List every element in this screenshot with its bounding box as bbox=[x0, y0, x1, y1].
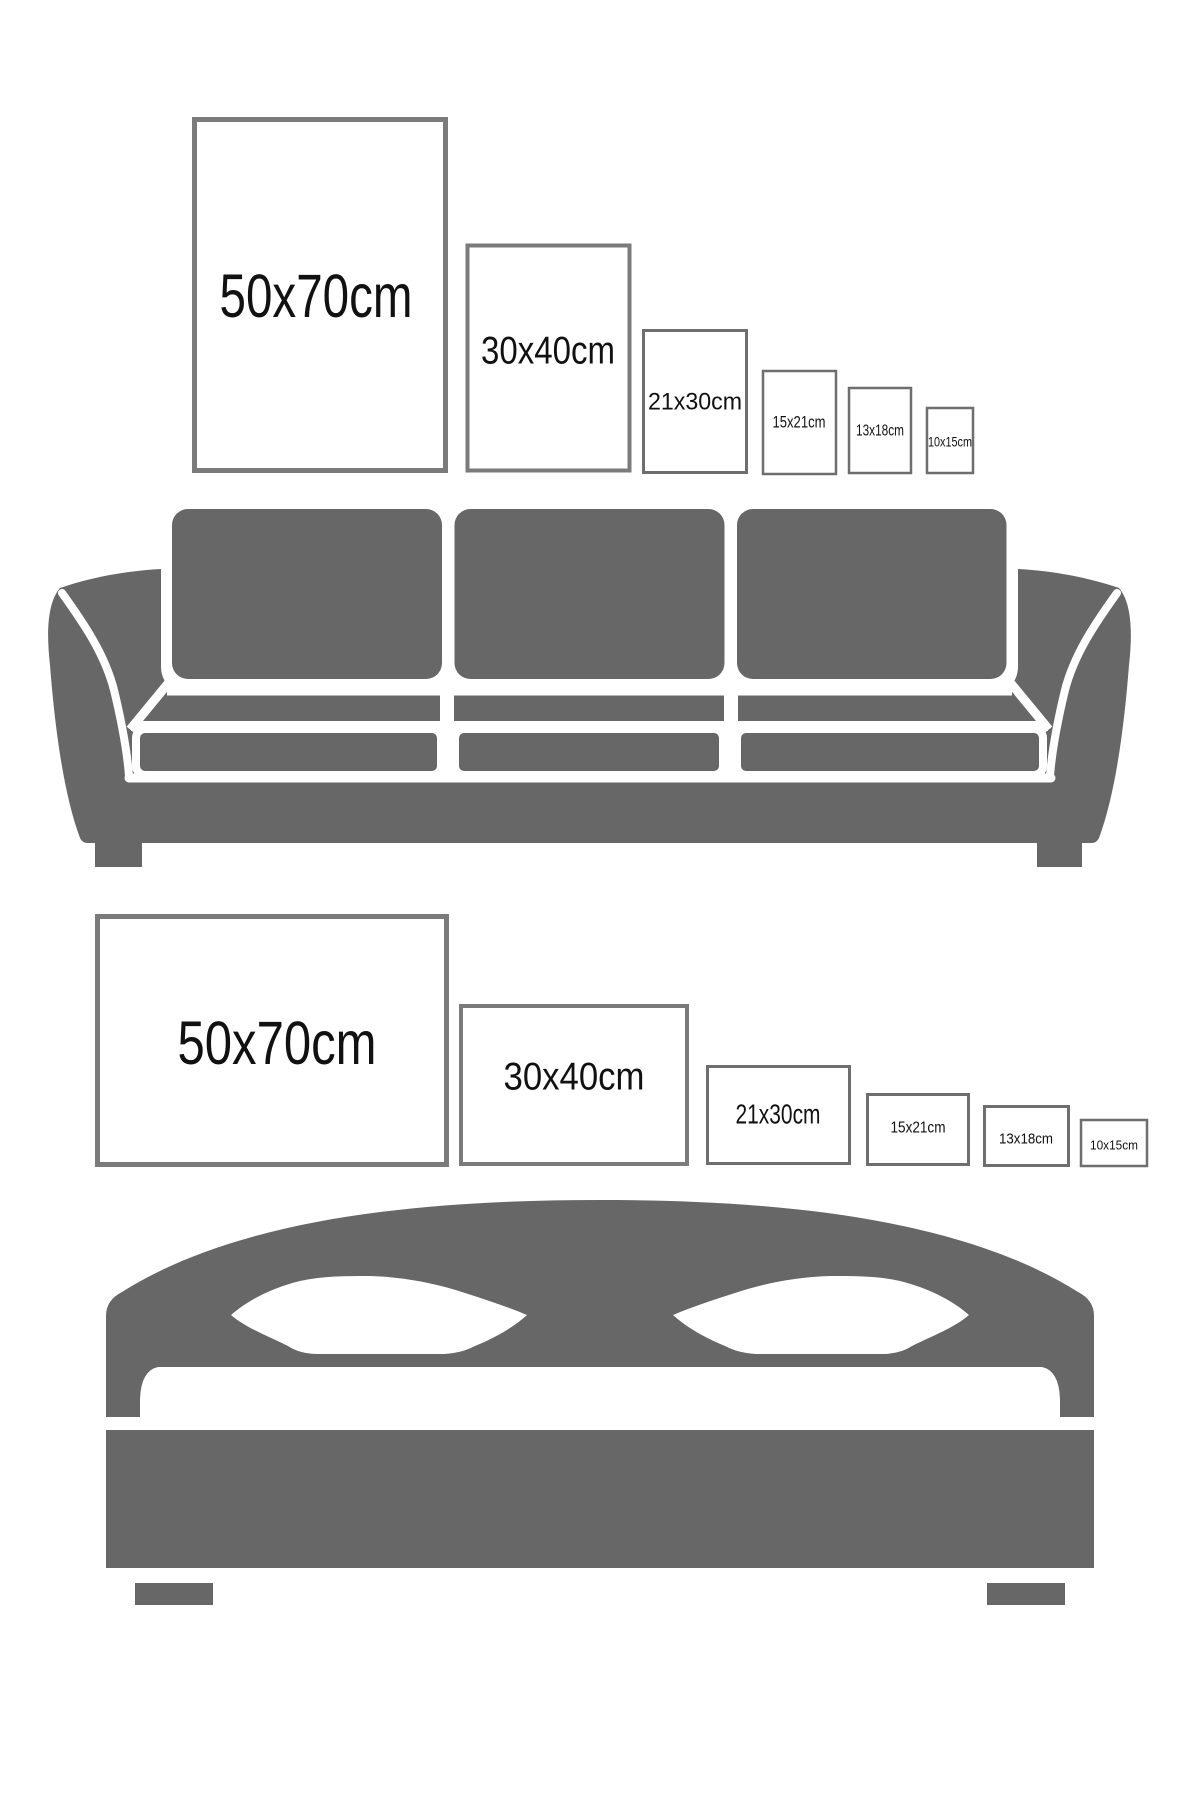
svg-text:13x18cm: 13x18cm bbox=[999, 1131, 1053, 1148]
svg-text:21x30cm: 21x30cm bbox=[648, 389, 742, 416]
svg-text:50x70cm: 50x70cm bbox=[220, 262, 413, 330]
svg-text:15x21cm: 15x21cm bbox=[891, 1120, 946, 1137]
svg-text:13x18cm: 13x18cm bbox=[856, 423, 904, 440]
svg-text:10x15cm: 10x15cm bbox=[928, 435, 972, 450]
svg-text:50x70cm: 50x70cm bbox=[178, 1009, 377, 1077]
svg-text:21x30cm: 21x30cm bbox=[736, 1099, 821, 1130]
svg-text:10x15cm: 10x15cm bbox=[1090, 1138, 1138, 1153]
svg-text:30x40cm: 30x40cm bbox=[481, 330, 615, 373]
svg-text:15x21cm: 15x21cm bbox=[773, 413, 826, 432]
svg-text:30x40cm: 30x40cm bbox=[504, 1056, 645, 1099]
